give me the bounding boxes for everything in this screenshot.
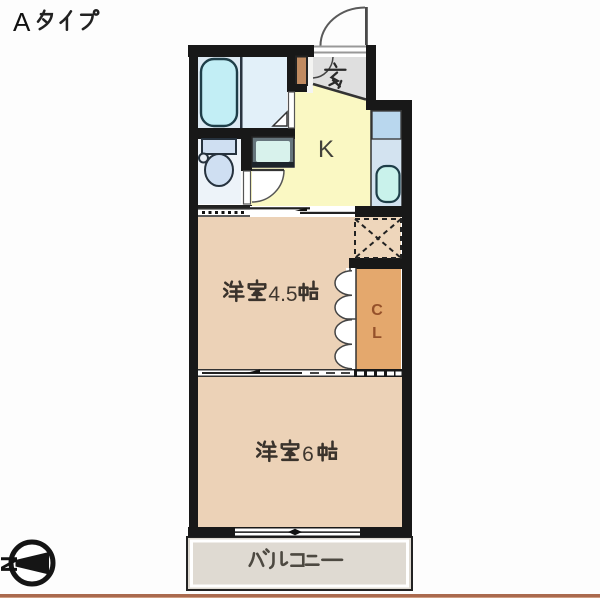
svg-text:N: N: [0, 556, 22, 573]
svg-text:L: L: [372, 325, 382, 342]
svg-text:A: A: [13, 7, 31, 37]
svg-text:K: K: [318, 136, 334, 163]
svg-text:4.5: 4.5: [268, 283, 297, 306]
svg-text:6: 6: [302, 443, 314, 466]
svg-text:C: C: [371, 302, 383, 319]
